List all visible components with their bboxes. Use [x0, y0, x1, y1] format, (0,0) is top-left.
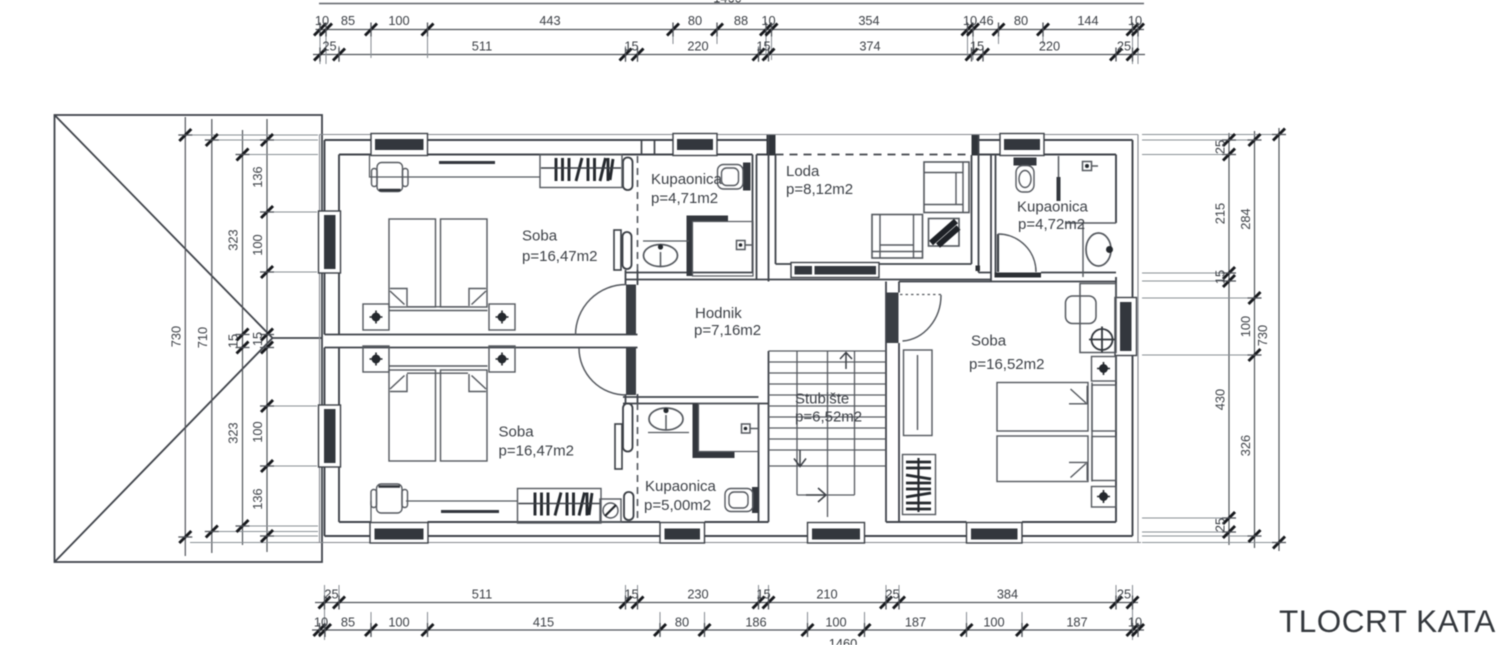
svg-text:187: 187 — [905, 615, 926, 630]
svg-text:25: 25 — [885, 587, 899, 602]
svg-text:p=16,47m2: p=16,47m2 — [522, 248, 597, 265]
svg-text:15: 15 — [756, 587, 770, 602]
svg-text:100: 100 — [825, 615, 846, 630]
svg-text:15: 15 — [756, 39, 770, 54]
svg-text:10: 10 — [1128, 13, 1142, 28]
svg-text:p=16,47m2: p=16,47m2 — [499, 443, 574, 460]
svg-text:100: 100 — [1238, 316, 1253, 337]
svg-text:25: 25 — [324, 587, 338, 602]
svg-text:85: 85 — [341, 13, 355, 28]
svg-text:10: 10 — [963, 13, 977, 28]
svg-text:15: 15 — [226, 334, 241, 348]
svg-text:15: 15 — [250, 332, 265, 346]
svg-text:15: 15 — [970, 39, 984, 54]
svg-text:Soba: Soba — [971, 333, 1007, 350]
svg-text:100: 100 — [388, 13, 409, 28]
svg-text:710: 710 — [195, 327, 210, 348]
svg-text:p=8,12m2: p=8,12m2 — [786, 181, 853, 198]
svg-text:220: 220 — [687, 39, 708, 54]
svg-text:15: 15 — [624, 587, 638, 602]
svg-text:323: 323 — [226, 422, 241, 443]
svg-text:Kupaonica: Kupaonica — [651, 171, 723, 188]
svg-text:374: 374 — [859, 39, 880, 54]
svg-text:100: 100 — [250, 234, 265, 255]
svg-text:511: 511 — [472, 39, 492, 54]
svg-text:144: 144 — [1077, 13, 1098, 28]
svg-text:Stubište: Stubište — [795, 391, 849, 408]
svg-text:230: 230 — [687, 587, 708, 602]
svg-text:136: 136 — [250, 488, 265, 509]
svg-text:15: 15 — [1213, 270, 1228, 284]
svg-text:Soba: Soba — [499, 424, 535, 441]
svg-text:210: 210 — [816, 587, 837, 602]
svg-text:p=4,72m2: p=4,72m2 — [1018, 216, 1085, 233]
svg-text:TLOCRT KATA: TLOCRT KATA — [1279, 603, 1496, 639]
svg-text:46: 46 — [979, 13, 993, 28]
svg-text:730: 730 — [168, 326, 183, 347]
svg-text:186: 186 — [745, 615, 766, 630]
svg-text:326: 326 — [1238, 435, 1253, 456]
svg-text:p=4,71m2: p=4,71m2 — [651, 190, 718, 207]
svg-text:p=7,16m2: p=7,16m2 — [694, 322, 761, 339]
svg-text:25: 25 — [1213, 518, 1228, 532]
svg-text:100: 100 — [983, 615, 1004, 630]
svg-text:430: 430 — [1213, 389, 1228, 410]
svg-text:p=5,00m2: p=5,00m2 — [644, 497, 711, 514]
svg-text:85: 85 — [341, 615, 355, 630]
svg-text:p=16,52m2: p=16,52m2 — [969, 356, 1044, 373]
svg-text:Kupaonica: Kupaonica — [1017, 199, 1089, 216]
svg-text:10: 10 — [314, 615, 328, 630]
svg-text:p=6,52m2: p=6,52m2 — [795, 409, 862, 426]
svg-text:511: 511 — [472, 587, 492, 602]
svg-text:415: 415 — [533, 615, 554, 630]
svg-text:1460: 1460 — [713, 0, 741, 6]
svg-text:136: 136 — [250, 166, 265, 187]
svg-text:Soba: Soba — [522, 228, 558, 245]
svg-text:323: 323 — [226, 229, 241, 250]
svg-text:100: 100 — [388, 615, 409, 630]
svg-text:80: 80 — [688, 13, 702, 28]
svg-text:730: 730 — [1255, 325, 1270, 346]
svg-text:Kupaonica: Kupaonica — [645, 478, 717, 495]
svg-text:10: 10 — [315, 13, 329, 28]
svg-text:80: 80 — [1014, 13, 1028, 28]
svg-text:187: 187 — [1066, 615, 1087, 630]
svg-text:384: 384 — [997, 587, 1018, 602]
svg-text:88: 88 — [734, 13, 748, 28]
svg-text:Hodnik: Hodnik — [695, 305, 742, 322]
svg-text:443: 443 — [539, 13, 560, 28]
svg-text:10: 10 — [1128, 615, 1142, 630]
svg-text:25: 25 — [1117, 39, 1131, 54]
svg-text:25: 25 — [1117, 587, 1131, 602]
svg-text:354: 354 — [858, 13, 879, 28]
svg-text:215: 215 — [1213, 203, 1228, 224]
svg-text:284: 284 — [1238, 208, 1253, 229]
svg-text:15: 15 — [624, 39, 638, 54]
svg-text:1460: 1460 — [829, 636, 857, 645]
svg-text:25: 25 — [1213, 140, 1228, 154]
svg-text:80: 80 — [675, 615, 689, 630]
svg-text:Loda: Loda — [786, 163, 820, 180]
svg-text:100: 100 — [250, 421, 265, 442]
svg-text:25: 25 — [322, 39, 336, 54]
svg-text:220: 220 — [1039, 39, 1060, 54]
svg-text:10: 10 — [761, 13, 775, 28]
